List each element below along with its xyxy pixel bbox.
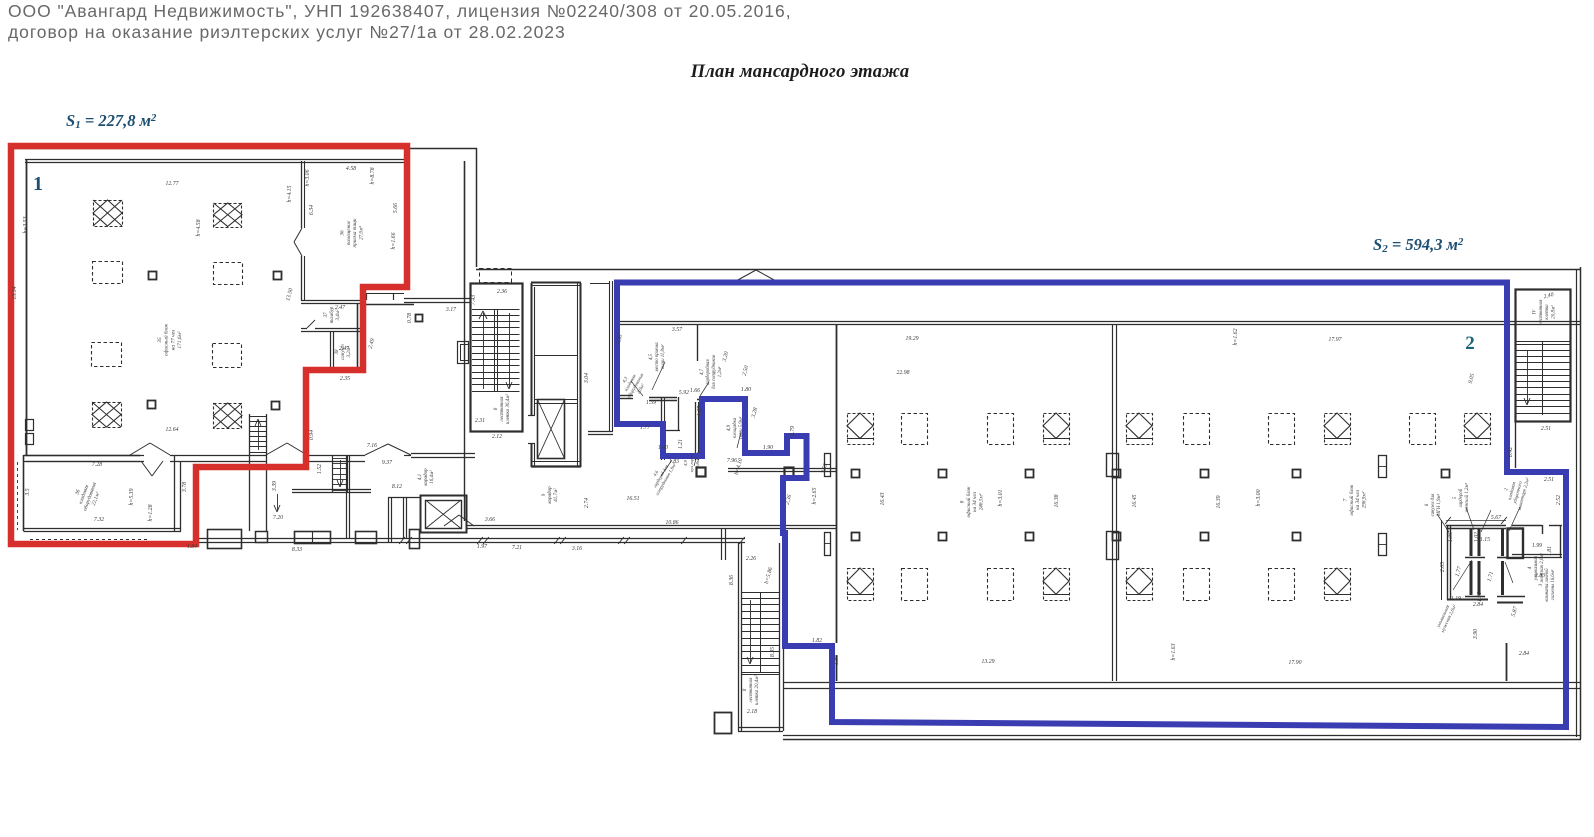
svg-text:3.04: 3.04 — [583, 373, 590, 384]
svg-text:7.21: 7.21 — [512, 545, 522, 551]
svg-text:место приема: место приема — [655, 342, 660, 373]
svg-text:4,9: 4,9 — [727, 424, 732, 431]
svg-text:36: 36 — [339, 230, 345, 236]
svg-text:19.29: 19.29 — [905, 336, 918, 342]
svg-text:1.86: 1.86 — [834, 655, 840, 665]
svg-text:1: 1 — [33, 173, 43, 195]
svg-text:3.28: 3.28 — [751, 407, 760, 419]
svg-text:17.90: 17.90 — [1288, 660, 1301, 666]
svg-text:6.34: 6.34 — [308, 205, 315, 215]
svg-text:h=1.63: h=1.63 — [1171, 643, 1177, 660]
svg-text:1,2м²: 1,2м² — [717, 366, 723, 377]
svg-text:связи 5,9м²: связи 5,9м² — [738, 416, 744, 439]
svg-text:13.29: 13.29 — [981, 659, 994, 665]
svg-text:3.5: 3.5 — [25, 488, 31, 496]
svg-text:1.66: 1.66 — [690, 388, 700, 394]
svg-text:1.90: 1.90 — [763, 445, 773, 451]
svg-text:h=4.15: h=4.15 — [286, 185, 293, 202]
svg-text:35: 35 — [157, 337, 163, 344]
svg-text:коридор: коридор — [424, 468, 429, 486]
svg-text:2.35: 2.35 — [340, 376, 350, 382]
svg-text:1.82: 1.82 — [812, 638, 822, 644]
svg-text:h=8.78: h=8.78 — [370, 167, 376, 184]
svg-text:8.36: 8.36 — [729, 575, 735, 585]
svg-text:9.05: 9.05 — [1468, 373, 1476, 384]
svg-text:2.36: 2.36 — [785, 494, 793, 505]
svg-text:3.16: 3.16 — [571, 546, 582, 552]
svg-text:1.71: 1.71 — [1487, 571, 1495, 582]
svg-text:13.50: 13.50 — [285, 288, 294, 302]
svg-text:1.15: 1.15 — [1480, 537, 1490, 543]
svg-text:7.16: 7.16 — [367, 443, 377, 449]
svg-text:h=3.06: h=3.06 — [305, 169, 311, 186]
svg-text:офисный блок: офисный блок — [965, 486, 972, 518]
svg-text:h=4.58: h=4.58 — [195, 219, 202, 236]
svg-text:12.77: 12.77 — [165, 181, 179, 187]
svg-text:санузел: санузел — [341, 344, 346, 359]
svg-text:2.18: 2.18 — [747, 709, 757, 715]
svg-text:1.06: 1.06 — [1448, 532, 1454, 542]
svg-text:20,8м²: 20,8м² — [1550, 305, 1556, 319]
svg-text:7.20: 7.20 — [273, 515, 283, 521]
svg-text:коридор: коридор — [548, 486, 553, 504]
svg-text:5: 5 — [1453, 496, 1458, 499]
svg-text:S1 = 227,8 м2: S1 = 227,8 м2 — [66, 111, 157, 131]
svg-text:5.92: 5.92 — [679, 390, 689, 396]
svg-text:на 77 чел: на 77 чел — [170, 329, 176, 350]
svg-text:7.96: 7.96 — [727, 458, 737, 464]
svg-text:лестничная: лестничная — [1539, 299, 1544, 326]
svg-text:2.52: 2.52 — [1556, 495, 1562, 505]
svg-text:0.94: 0.94 — [308, 430, 315, 440]
svg-text:5.66: 5.66 — [393, 203, 399, 213]
svg-text:3.39: 3.39 — [272, 481, 278, 492]
svg-text:1.96: 1.96 — [1477, 592, 1483, 602]
svg-text:h=3.00: h=3.00 — [1256, 489, 1262, 506]
svg-text:умывальная: умывальная — [1534, 555, 1539, 581]
svg-text:комната личной: комната личной — [1544, 568, 1550, 602]
svg-text:2.51: 2.51 — [1544, 477, 1554, 483]
svg-text:8.12: 8.12 — [392, 484, 402, 490]
svg-text:3.90: 3.90 — [1473, 629, 1479, 640]
svg-text:7.32: 7.32 — [94, 517, 104, 523]
svg-text:пищи 11,8м²: пищи 11,8м² — [660, 344, 666, 369]
svg-text:16.39: 16.39 — [1216, 495, 1222, 508]
svg-text:офисный блок: офисный блок — [163, 323, 170, 356]
svg-text:2.26: 2.26 — [746, 556, 756, 562]
svg-text:площадка: площадка — [733, 417, 738, 438]
svg-text:10.86: 10.86 — [665, 520, 678, 526]
svg-text:гигиены 16,6м²: гигиены 16,6м² — [1550, 569, 1556, 600]
svg-text:17.97: 17.97 — [1328, 337, 1342, 343]
svg-text:2.50: 2.50 — [742, 365, 750, 376]
svg-text:5.87: 5.87 — [1511, 605, 1520, 617]
svg-text:S2 = 594,3 м2: S2 = 594,3 м2 — [1373, 235, 1464, 255]
svg-text:12.64: 12.64 — [165, 426, 178, 433]
svg-text:16.43: 16.43 — [879, 492, 886, 505]
svg-text:9.37: 9.37 — [382, 460, 393, 466]
svg-text:2.49: 2.49 — [367, 338, 376, 350]
svg-text:кух горяч: кух горяч — [689, 453, 694, 472]
svg-text:для сотрудников: для сотрудников — [712, 355, 717, 389]
svg-text:h=5.86: h=5.86 — [764, 567, 774, 585]
svg-text:4.58: 4.58 — [346, 165, 356, 172]
svg-text:h=1.62: h=1.62 — [1233, 328, 1239, 345]
svg-text:2.74: 2.74 — [583, 498, 590, 508]
svg-text:гардеробная: гардеробная — [706, 359, 711, 385]
svg-text:h=2.65: h=2.65 — [812, 487, 818, 504]
svg-text:8: 8 — [494, 407, 499, 410]
svg-text:2.31: 2.31 — [475, 418, 485, 424]
svg-text:41,7м²: 41,7м² — [553, 488, 559, 502]
svg-text:0.78: 0.78 — [407, 313, 413, 323]
svg-text:1.81: 1.81 — [1547, 546, 1553, 556]
svg-text:1.80: 1.80 — [741, 387, 751, 393]
svg-text:171,6м²: 171,6м² — [177, 331, 183, 349]
svg-text:3.17: 3.17 — [445, 307, 457, 313]
svg-text:2.12: 2.12 — [492, 434, 502, 440]
svg-text:1.77: 1.77 — [640, 425, 651, 431]
svg-text:2: 2 — [1504, 487, 1510, 491]
svg-text:1.27: 1.27 — [697, 405, 703, 416]
svg-text:на 34 чел: на 34 чел — [971, 491, 978, 512]
svg-text:7.28: 7.28 — [92, 462, 102, 468]
svg-text:16.45: 16.45 — [1131, 494, 1138, 507]
svg-text:h=5.39: h=5.39 — [129, 488, 135, 505]
svg-text:8: 8 — [743, 688, 748, 691]
svg-text:8.42: 8.42 — [1507, 447, 1514, 457]
svg-text:9: 9 — [542, 493, 547, 496]
svg-text:2.84: 2.84 — [1519, 650, 1529, 657]
svg-text:1.21: 1.21 — [678, 439, 684, 449]
svg-text:2.65: 2.65 — [1440, 562, 1446, 572]
svg-text:2.36: 2.36 — [497, 289, 507, 295]
svg-text:клетка: клетка — [1545, 304, 1550, 320]
svg-text:37: 37 — [324, 312, 329, 318]
svg-text:помещение: помещение — [346, 220, 352, 245]
svg-text:1.52: 1.52 — [317, 464, 323, 474]
svg-text:h=3.53: h=3.53 — [23, 216, 29, 233]
svg-text:3.20: 3.20 — [722, 351, 731, 363]
svg-text:лестничная: лестничная — [749, 677, 754, 704]
svg-text:16.51: 16.51 — [626, 496, 639, 502]
svg-text:1.40: 1.40 — [658, 444, 668, 451]
svg-text:1.97: 1.97 — [477, 544, 488, 550]
svg-text:8: 8 — [959, 500, 965, 503]
svg-text:санузел для: санузел для — [1431, 493, 1436, 517]
svg-text:8.33: 8.33 — [292, 547, 302, 553]
svg-text:4,7: 4,7 — [700, 368, 705, 375]
svg-text:h=1.28: h=1.28 — [148, 504, 154, 521]
svg-text:лестничная: лестничная — [500, 396, 505, 423]
svg-text:1.02: 1.02 — [1474, 532, 1480, 542]
svg-text:2.84: 2.84 — [1473, 601, 1483, 608]
svg-text:на 34 чел: на 34 чел — [1354, 489, 1361, 510]
svg-text:1.84: 1.84 — [187, 543, 197, 550]
svg-text:298,9м²: 298,9м² — [1362, 491, 1368, 508]
svg-text:7.43: 7.43 — [470, 295, 477, 305]
svg-text:16.38: 16.38 — [1054, 494, 1060, 507]
svg-text:клетка 20,4м²: клетка 20,4м² — [754, 675, 760, 705]
svg-text:клетка 36,4м²: клетка 36,4м² — [505, 394, 511, 424]
svg-text:248,5м²: 248,5м² — [978, 493, 985, 510]
svg-text:тамбур: тамбур — [330, 306, 335, 323]
svg-text:2.40: 2.40 — [1543, 291, 1555, 300]
svg-text:27,0м²: 27,0м² — [359, 226, 365, 240]
svg-text:офисный блок: офисный блок — [1348, 484, 1355, 516]
svg-text:2.59: 2.59 — [821, 463, 829, 474]
svg-text:приема пищи: приема пищи — [352, 218, 358, 247]
svg-text:1.99: 1.99 — [1532, 543, 1542, 549]
svg-text:3.78: 3.78 — [182, 482, 188, 493]
svg-text:22.98: 22.98 — [896, 370, 909, 376]
svg-text:3,2м²: 3,2м² — [346, 346, 352, 357]
svg-text:2.51: 2.51 — [1541, 426, 1551, 432]
svg-text:38: 38 — [335, 349, 340, 355]
svg-text:3,4м²: 3,4м² — [335, 309, 341, 320]
svg-text:5.67: 5.67 — [1491, 515, 1502, 521]
svg-text:IV: IV — [1533, 309, 1538, 316]
svg-text:1.59: 1.59 — [646, 400, 656, 406]
svg-text:0.79: 0.79 — [790, 426, 796, 436]
svg-text:13.54: 13.54 — [11, 286, 18, 299]
svg-text:женский 1,2м²: женский 1,2м² — [1464, 483, 1470, 513]
svg-text:6: 6 — [1425, 503, 1430, 506]
svg-text:16,4м²: 16,4м² — [429, 470, 435, 484]
svg-text:3.66: 3.66 — [484, 517, 495, 523]
svg-text:1.19: 1.19 — [1451, 596, 1461, 602]
svg-text:h=3.01: h=3.01 — [998, 489, 1004, 506]
svg-text:3.57: 3.57 — [671, 327, 683, 333]
svg-text:h=1.66: h=1.66 — [391, 232, 397, 249]
svg-text:2: 2 — [1465, 333, 1475, 354]
svg-text:7: 7 — [1342, 498, 1348, 501]
svg-text:4,5: 4,5 — [649, 353, 654, 360]
svg-text:4: 4 — [1528, 566, 1533, 569]
svg-text:4,1: 4,1 — [418, 474, 423, 480]
svg-text:гардероб: гардероб — [1459, 488, 1464, 507]
svg-text:МГН 1,9м²: МГН 1,9м² — [1436, 494, 1442, 517]
svg-text:8.35: 8.35 — [770, 647, 776, 657]
